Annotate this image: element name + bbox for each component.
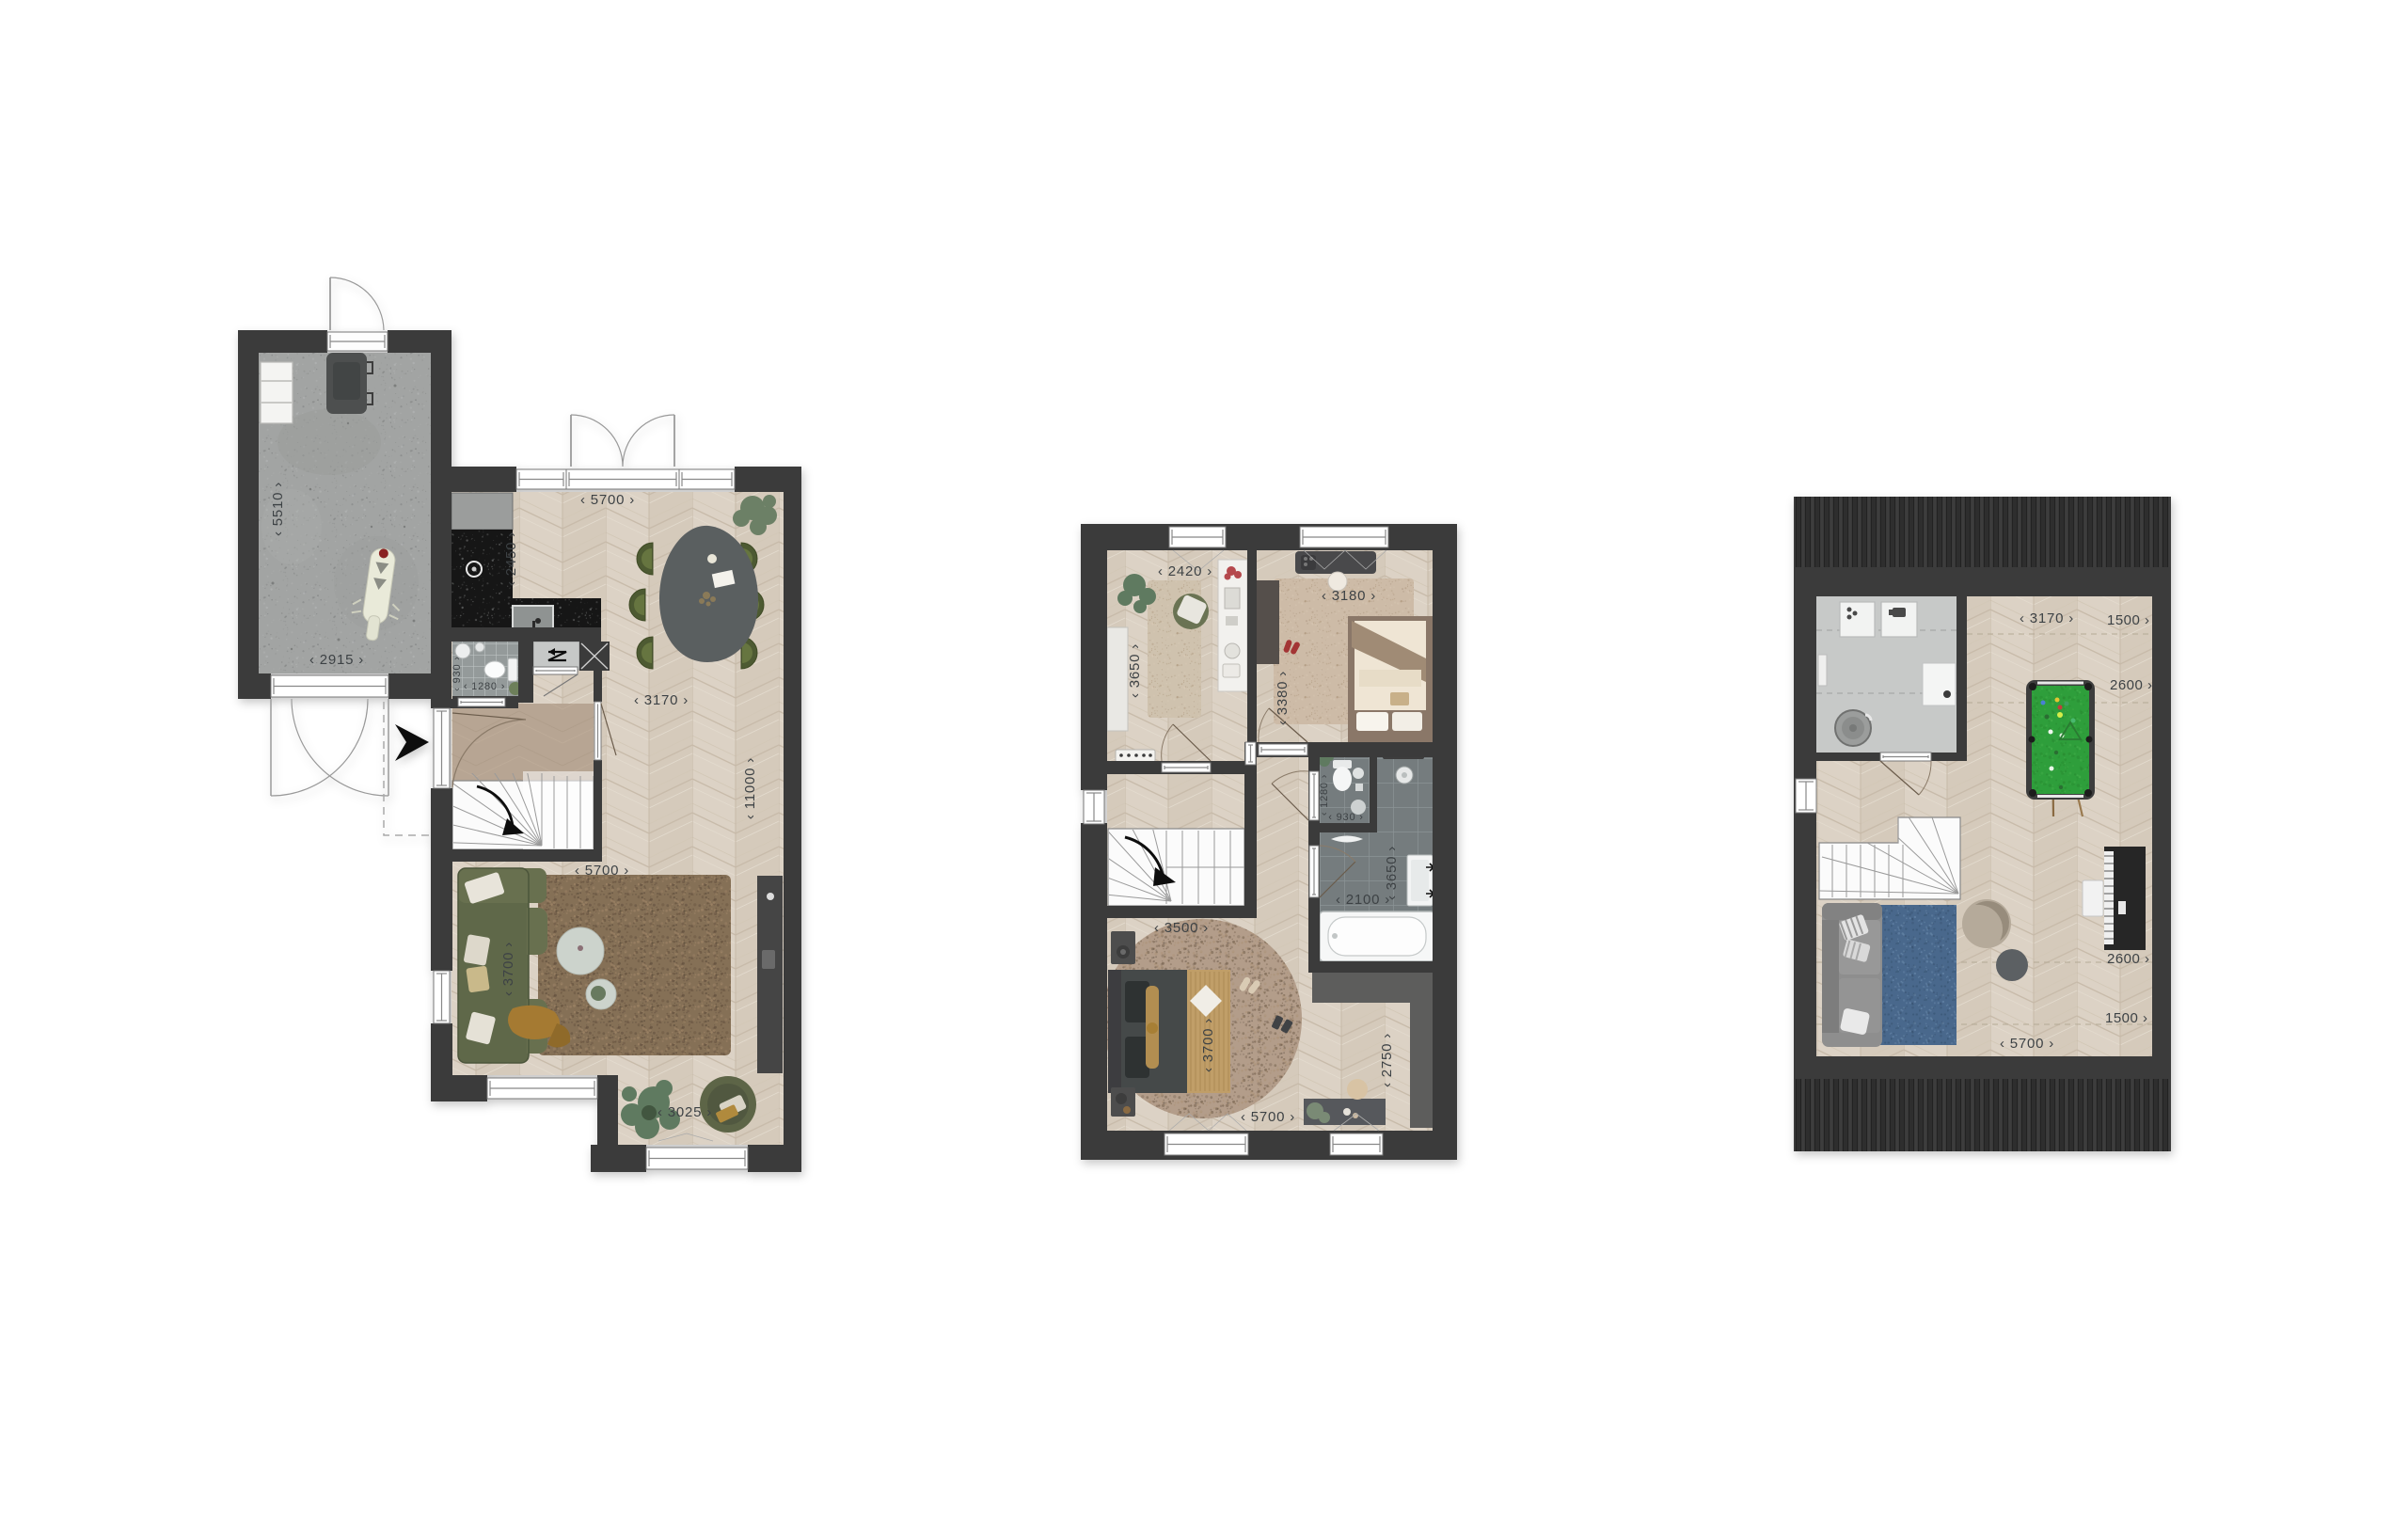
svg-text:‹ 930 ›: ‹ 930 › bbox=[451, 656, 463, 690]
svg-text:‹ 3025 ›: ‹ 3025 › bbox=[657, 1104, 712, 1120]
svg-text:‹ 930 ›: ‹ 930 › bbox=[1328, 812, 1363, 823]
svg-text:‹ 3700 ›: ‹ 3700 › bbox=[1200, 1018, 1216, 1072]
svg-text:‹ 2450 ›: ‹ 2450 › bbox=[503, 531, 519, 586]
svg-text:‹ 3180 ›: ‹ 3180 › bbox=[1322, 588, 1376, 604]
svg-text:‹ 5700 ›: ‹ 5700 › bbox=[580, 492, 635, 508]
svg-text:1500 ›: 1500 › bbox=[2105, 1010, 2148, 1026]
svg-text:2600 ›: 2600 › bbox=[2107, 951, 2150, 967]
svg-text:‹ 5700 ›: ‹ 5700 › bbox=[575, 863, 629, 879]
svg-text:‹ 5700 ›: ‹ 5700 › bbox=[1241, 1109, 1295, 1125]
svg-text:‹ 3500 ›: ‹ 3500 › bbox=[1154, 920, 1209, 936]
svg-text:1500 ›: 1500 › bbox=[2107, 612, 2150, 628]
svg-text:‹ 1280 ›: ‹ 1280 › bbox=[464, 681, 505, 692]
svg-text:‹ 3380 ›: ‹ 3380 › bbox=[1275, 671, 1291, 725]
svg-text:‹ 5700 ›: ‹ 5700 › bbox=[2000, 1036, 2054, 1052]
svg-text:2600 ›: 2600 › bbox=[2110, 677, 2153, 693]
svg-text:‹ 3700 ›: ‹ 3700 › bbox=[500, 942, 516, 996]
svg-text:‹ 11000 ›: ‹ 11000 › bbox=[742, 757, 758, 819]
svg-text:‹ 3170 ›: ‹ 3170 › bbox=[634, 692, 689, 708]
svg-text:‹ 3650 ›: ‹ 3650 › bbox=[1127, 643, 1143, 698]
svg-text:‹ 2750 ›: ‹ 2750 › bbox=[1379, 1033, 1395, 1087]
svg-text:‹ 2915 ›: ‹ 2915 › bbox=[309, 652, 364, 668]
svg-text:‹ 1280 ›: ‹ 1280 › bbox=[1319, 774, 1330, 816]
svg-text:‹ 5510 ›: ‹ 5510 › bbox=[270, 482, 286, 536]
svg-text:‹ 2100 ›: ‹ 2100 › bbox=[1336, 892, 1390, 908]
svg-text:‹ 3170 ›: ‹ 3170 › bbox=[2020, 610, 2074, 626]
svg-text:‹ 2420 ›: ‹ 2420 › bbox=[1158, 563, 1212, 579]
